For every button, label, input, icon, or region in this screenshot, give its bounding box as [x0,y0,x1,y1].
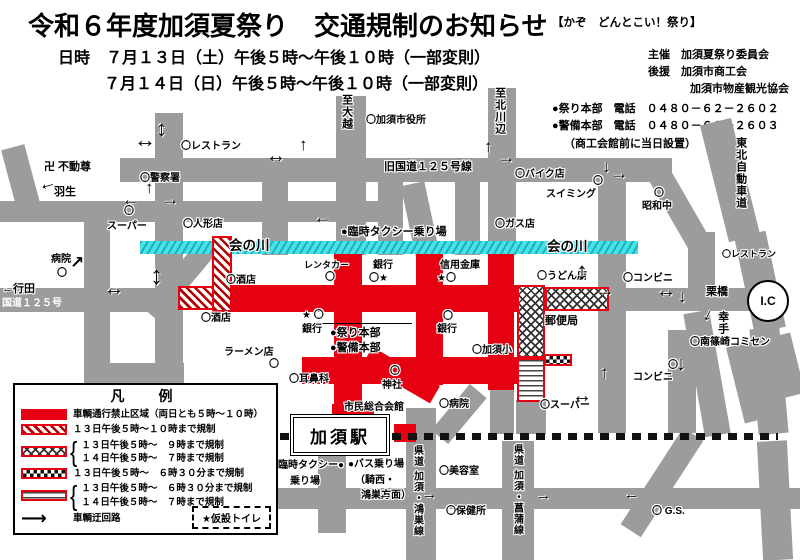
legend-item-label: 車輌通行禁止区域（両日とも５時～１０時） [73,408,263,421]
event-datetime-1: 日時 ７月１３日（土）午後５時～午後１０時（一部変則） [58,44,490,68]
detour-arrow-icon: ↑ [484,138,493,155]
detour-arrow-icon: ↑ [299,136,308,153]
detour-arrow-icon: → [536,488,551,503]
detour-arrow-icon: ↔ [266,146,286,166]
legend-title: 凡 例 [21,386,272,406]
detour-arrow-icon: ← [122,191,139,208]
map-label: 至大越 [340,94,353,130]
restricted-road-patterned [517,285,545,358]
map-label: 〇酒店 [226,275,256,287]
map-label: 〇耳鼻科 [289,374,329,386]
expressway-ic-circle: I.C [747,280,789,322]
map-label: 〇人形店 [183,219,223,231]
kazo-station-box: 加須駅 [290,414,390,456]
map-label: 乗り場 [290,476,320,488]
road [688,232,715,294]
road [621,428,704,538]
supporter-2: 加須市物産観光協会 [690,80,789,96]
legend-item-label: １３日午後５時～ ９時まで規制１４日午後５時～ ７時まで規制 [81,439,224,466]
detour-arrow-icon: ← [36,172,58,194]
map-label: ●警備本部 [330,342,381,355]
map-label: 〇酒店 [201,313,231,325]
map-label: 〇レストラン [722,249,776,259]
map-label: 市民総合会館 [344,402,404,414]
detour-arrow-icon: ↔ [104,279,124,299]
road [490,388,514,434]
map-label: 〇 [593,176,603,188]
map-label: 〇 [443,311,453,323]
traffic-notice-poster: 令和６年度加須夏祭り 交通規制のお知らせ 日時 ７月１３日（土）午後５時～午後１… [0,0,800,560]
map-label: ←行田 [2,283,35,296]
detour-arrow-icon: ↓ [676,354,686,374]
map-label: 病院 [51,254,71,266]
map-label: 会の川 [229,238,270,254]
map-label: 〇ガス店 [495,219,535,231]
map-label: ●臨時タクシー乗り場 [341,226,447,239]
map-label: 〇 [654,188,664,200]
map-label: 信用金庫 [440,260,480,272]
legend-item: 車輌通行禁止区域（両日とも５時～１０時） [21,408,272,421]
map-label: 幸手 [716,311,729,335]
map-label: 〇加須市役所 [366,115,426,127]
road [700,118,760,242]
map-label: 神社 [382,380,402,392]
road [598,182,626,288]
restricted-road-patterned [178,286,214,310]
map-label: 〇 [57,268,67,280]
phone-note: （商工会館前に当日設置） [564,135,696,151]
detour-arrow-icon: ↕ [150,262,163,288]
map-label: 〇バイク店 [515,169,565,181]
legend-swatch-cross [21,446,67,457]
brace-icon: { [70,436,77,469]
detour-arrow-icon: ↓ [678,288,687,305]
map-label: 銀行 [373,260,393,272]
map-label: 旧国道１２５号線 [384,161,472,174]
map-label: 昭和中 [642,201,672,213]
detour-arrow-icon: ↓ [602,158,611,175]
page-title: 令和６年度加須夏祭り 交通規制のお知らせ [28,6,547,43]
detour-arrow-icon: ↔ [134,129,156,151]
map-label: 県道 加須・菖蒲線 [511,444,523,536]
legend-swatch-wave [21,490,67,501]
map-label: 〇★ [369,273,388,285]
legend-item-label: 車輌迂回路 [73,512,121,525]
map-label: 至北川辺 [493,87,506,135]
restricted-road [488,254,514,390]
map-label: ★ 〇 [302,310,324,322]
restricted-road-patterned [544,354,572,366]
security-hq-phone: ●警備本部 電話 ０４８０－６２－２６０３ [552,117,779,133]
map-label: コンビニ [633,372,673,384]
map-label: 〇美容室 [439,466,479,478]
detour-arrow-icon: → [162,191,179,208]
map-label: 〇保健所 [446,506,486,518]
legend-item: {１３日午後５時～ ９時まで規制１４日午後５時～ ７時まで規制 [21,439,272,466]
map-label: 会の川 [547,239,588,255]
detour-arrow-icon: ↔ [572,386,592,406]
map-label: 県道 加須・鴻巣線 [411,445,423,537]
detour-arrow-icon: ↗ [70,254,84,271]
detour-arrow-icon: ← [314,209,331,226]
detour-arrow-icon: ↑ [145,179,154,196]
detour-arrow-icon: ↕ [156,118,167,140]
map-label: 〇 [390,366,400,378]
map-label: ラーメン店 [224,347,274,359]
supporter-1: 後援 加須市商工会 [648,63,747,79]
map-label: 〇加須小 [472,345,512,357]
detour-arrow-icon: → [498,149,515,166]
map-label: （騎西・ [355,475,395,487]
detour-arrow-icon: → [611,165,628,182]
restricted-road [228,285,520,312]
brace-icon: { [70,480,77,513]
legend-item-label: １３日午後５時～ ６時３０分まで規制 [73,467,244,480]
map-label: スーパー [107,221,147,233]
map-label: 東北自動車道 [734,137,747,209]
map-label: 銀行 [437,324,457,336]
map-label: 〇 G.S. [652,506,685,518]
event-datetime-2: ７月１４日（日）午後５時～午後１０時（一部変則） [104,70,488,94]
detour-arrow-icon: ← [624,487,639,502]
map-label: 〇 [325,272,335,284]
detour-arrow-icon: ↑ [600,364,609,381]
map-label: 〇病院 [439,399,469,411]
map-label: 国道１２５号 [2,298,62,310]
map-label: 栗橋 [706,286,728,299]
legend-swatch-check [21,468,67,479]
restricted-road-patterned [517,358,545,402]
map-label: ●祭り本部 [330,327,381,340]
detour-arrow-icon: → [422,487,437,502]
detour-arrow-icon: → [597,282,614,299]
detour-arrow-icon: ← [378,487,393,502]
map-label: 〇レストラン [181,141,241,153]
legend-item: １３日午後５時～１０時まで規制 [21,423,272,436]
festival-hq-phone: ●祭り本部 電話 ０４８０－６２－２６０２ [552,100,779,116]
map-label: ●バス乗り場 [348,459,404,471]
temporary-toilet-note: ★仮設トイレ [192,506,271,529]
map-label: ★〇 [437,273,456,285]
legend-swatch-diag [21,424,67,435]
festival-slogan: 【かぞ どんとこい！祭り】 [552,14,702,30]
legend-item-label: １３日午後５時～１０時まで規制 [73,423,216,436]
map-label: 〇南篠崎コミセン [690,337,770,349]
map-label: 郵便局 [545,315,578,328]
detour-arrow-icon: ↔ [656,281,676,301]
kazo-station-label: 加須駅 [310,423,370,448]
map-label: レンタカー [304,260,349,270]
map-label: 銀行 [302,324,322,336]
legend-item: １３日午後５時～ ６時３０分まで規制 [21,467,272,480]
organizer: 主催 加須夏祭り委員会 [648,46,769,62]
legend-swatch-solid [21,409,67,420]
detour-arrow-icon: ↕ [576,260,588,284]
map-label: スイミング [546,189,596,201]
road [84,363,184,385]
detour-arrow-icon: ⟶ [21,511,67,525]
ic-label: I.C [760,294,775,308]
map-label: 〇 [269,359,279,371]
map-label: 臨時タクシー● [278,460,344,472]
legend-box: 凡 例 車輌通行禁止区域（両日とも５時～１０時）１３日午後５時～１０時まで規制{… [13,383,278,535]
